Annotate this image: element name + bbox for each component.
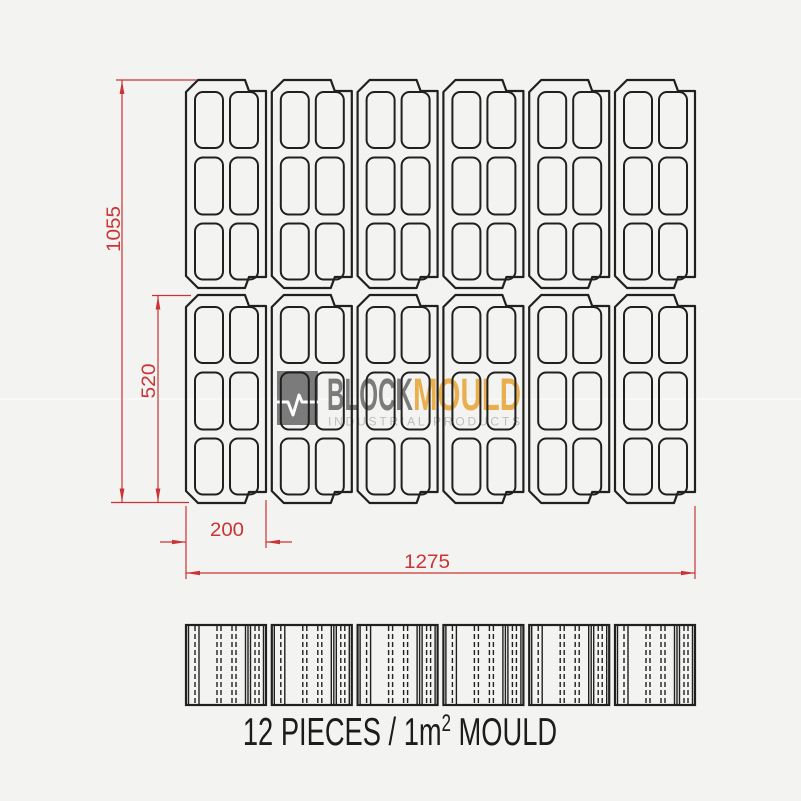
dimension-total-height: 1055 — [104, 80, 197, 503]
arrowhead — [120, 489, 125, 503]
mould-block — [615, 80, 695, 288]
dimension-total-width: 1275 — [186, 506, 695, 579]
arrowhead — [681, 571, 695, 575]
mould-block — [272, 80, 352, 288]
mould-block-elevation — [529, 625, 609, 705]
svg-text:12 PIECES / 1m2 MOULD: 12 PIECES / 1m2 MOULD — [243, 710, 557, 754]
mould-block-elevation — [443, 625, 523, 705]
arrowhead — [156, 296, 161, 310]
logo-watermark: BLOCK MOULD INDUSTRIAL PRODUCTS — [277, 369, 521, 429]
mould-block-elevation — [186, 625, 266, 705]
arrowhead — [156, 489, 161, 503]
caption-suffix: MOULD — [451, 711, 557, 754]
elevation-view — [186, 625, 695, 705]
arrowhead — [172, 540, 186, 544]
mould-block-elevation — [615, 625, 695, 705]
mould-block — [358, 80, 438, 288]
arrowhead — [120, 81, 125, 95]
logo-word-block: BLOCK — [327, 369, 413, 420]
arrowhead — [266, 540, 280, 544]
technical-drawing-canvas: BLOCK MOULD INDUSTRIAL PRODUCTS 1055 — [0, 0, 801, 801]
mould-block — [529, 80, 609, 288]
mould-block-elevation — [272, 625, 352, 705]
dim-label-total-width: 1275 — [404, 552, 450, 573]
caption-prefix: 12 PIECES / 1m — [243, 711, 442, 754]
dimension-block-width: 200 — [160, 500, 292, 579]
mould-block — [186, 80, 266, 288]
arrowhead — [186, 571, 200, 575]
mould-block — [443, 80, 523, 288]
caption: 12 PIECES / 1m2 MOULD — [243, 710, 557, 754]
dim-label-block-height: 520 — [139, 364, 160, 399]
caption-superscript: 2 — [442, 710, 451, 737]
plan-view — [186, 80, 695, 503]
dim-label-block-width: 200 — [210, 520, 244, 541]
dim-label-total-height: 1055 — [104, 206, 125, 252]
mould-block-elevation — [358, 625, 438, 705]
